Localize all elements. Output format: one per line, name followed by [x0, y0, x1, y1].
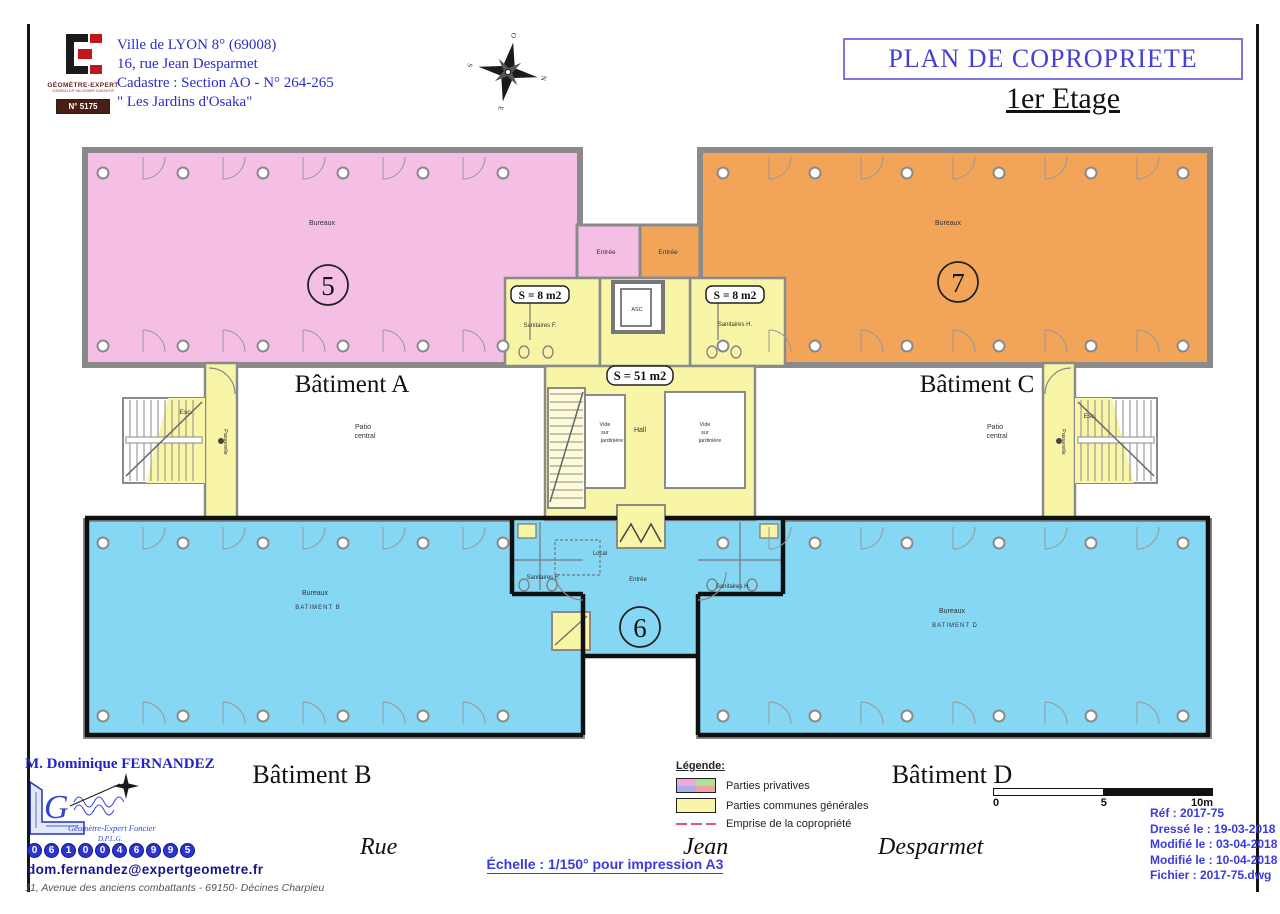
vide-right-1: Vide — [700, 422, 711, 428]
address-line-3: Cadastre : Section AO - N° 264-265 — [117, 74, 334, 93]
surveyor-logo: G Géomètre-Expert Foncier D.P.L.G. — [30, 773, 156, 843]
vide-left-3: jardinière — [600, 438, 624, 444]
street-desparmet: Desparmet — [878, 834, 983, 861]
bureaux-b-label: Bureaux — [302, 590, 329, 597]
surveyor-name: M. Dominique FERNANDEZ — [25, 756, 215, 773]
surveyor-email: dom.fernandez@expertgeometre.fr — [27, 862, 263, 877]
plan-title: PLAN DE COPROPRIETE — [888, 44, 1197, 74]
communes-swatch — [676, 798, 716, 813]
phone-number: 0 6 1 0 0 4 6 9 9 5 — [27, 843, 195, 858]
batiment-a-label: Bâtiment A — [295, 371, 410, 398]
bureaux-d-label: Bureaux — [939, 608, 966, 615]
scale-0: 0 — [993, 797, 999, 809]
patio-left-2: central — [354, 433, 375, 440]
vide-left-2: sur — [601, 430, 609, 436]
batiment-c-label: Bâtiment C — [920, 371, 1035, 398]
s8-right-label: S = 8 m2 — [714, 290, 757, 302]
sanitaires-f2-label: Sanitaires F. — [526, 575, 559, 581]
vide-right-2: sur — [701, 430, 709, 436]
entree-c-label: Entrée — [658, 249, 678, 256]
building-b-area — [85, 520, 583, 737]
logo-brand-text: GÉOMÈTRE-EXPERT — [44, 82, 122, 89]
entree-bottom-label: Entrée — [629, 577, 647, 583]
phone-digit: 9 — [146, 843, 161, 858]
sanitaires-h-label: Sanitaires H. — [718, 322, 753, 328]
project-address-block: Ville de LYON 8° (69008) 16, rue Jean De… — [117, 36, 334, 112]
surveyor-logo-line1: Géomètre-Expert Foncier — [68, 823, 156, 833]
address-line-1: Ville de LYON 8° (69008) — [117, 36, 334, 55]
phone-digit: 9 — [163, 843, 178, 858]
local-label: Local — [593, 551, 607, 557]
sanitaires-f-label: Sanitaires F. — [523, 323, 556, 329]
hall-label: Hall — [634, 427, 647, 434]
compass-rose: N E S O — [459, 26, 554, 118]
asc-label: ASC — [631, 307, 642, 313]
phone-digit: 5 — [180, 843, 195, 858]
info-ref: Réf : 2017-75 — [1150, 806, 1277, 822]
geometre-expert-logo-mark — [44, 32, 122, 76]
logo-tagline: CONSEILLER VALORISER GARANTIR — [44, 89, 122, 93]
legend-title: Légende: — [676, 760, 868, 772]
phone-digit: 4 — [112, 843, 127, 858]
compass-o: O — [509, 32, 518, 38]
sheet-frame-right — [1256, 24, 1259, 892]
vide-right-3: jardinière — [698, 438, 722, 444]
legend-communes-label: Parties communes générales — [726, 800, 868, 812]
geometre-expert-logo: GÉOMÈTRE-EXPERT CONSEILLER VALORISER GAR… — [44, 32, 122, 114]
batiment-d-sub: BATIMENT D — [932, 623, 978, 629]
bureaux-a-label: Bureaux — [309, 220, 336, 227]
compass-n: N — [539, 75, 548, 81]
legend: Légende: Parties privatives Parties comm… — [676, 760, 868, 830]
legend-row-emprise: Emprise de la copropriété — [676, 818, 868, 830]
sanitaires-h2-label: Sanitaires H. — [716, 584, 751, 590]
s51-label: S = 51 m2 — [614, 369, 667, 383]
bureaux-c-label: Bureaux — [935, 220, 962, 227]
phone-digit: 6 — [129, 843, 144, 858]
legend-row-communes: Parties communes générales — [676, 798, 868, 813]
emprise-dash-swatch — [676, 823, 716, 825]
address-line-4: " Les Jardins d'Osaka" — [117, 93, 334, 112]
patio-left-1: Patio — [355, 424, 371, 431]
info-fichier: Fichier : 2017-75.dwg — [1150, 868, 1277, 884]
legend-privatives-label: Parties privatives — [726, 780, 810, 792]
plan-title-box: PLAN DE COPROPRIETE — [843, 38, 1243, 80]
logo-number-badge: N° 5175 — [56, 99, 110, 114]
surveyor-logo-line2: D.P.L.G. — [97, 835, 123, 843]
legend-emprise-label: Emprise de la copropriété — [726, 818, 851, 830]
phone-digit: 0 — [95, 843, 110, 858]
entree-a-label: Entrée — [596, 249, 616, 256]
phone-digit: 0 — [78, 843, 93, 858]
legend-row-privatives: Parties privatives — [676, 778, 868, 793]
info-modifie-1: Modifié le : 03-04-2018 — [1150, 837, 1277, 853]
office-address: 11, Avenue des anciens combattants - 691… — [25, 882, 324, 894]
floor-subtitle: 1er Etage — [958, 82, 1168, 116]
patio-right-1: Patio — [987, 424, 1003, 431]
batiment-b-caption: Bâtiment B — [222, 760, 402, 790]
compass-s: S — [465, 63, 474, 68]
vide-left-1: Vide — [600, 422, 611, 428]
esc-left-label: Esc. — [180, 409, 193, 416]
floor-plan-drawing: Bâtiment A Bâtiment C Bureaux 5 Bureaux … — [0, 0, 1280, 914]
compass-e: E — [496, 105, 505, 111]
phone-digit: 0 — [27, 843, 42, 858]
scale-bar-graphic — [993, 788, 1213, 796]
info-dresse: Dressé le : 19-03-2018 — [1150, 822, 1277, 838]
logo-g-letter: G — [44, 789, 69, 826]
s8-left-label: S = 8 m2 — [519, 290, 562, 302]
scale-note: Échelle : 1/150° pour impression A3 — [455, 856, 755, 874]
lot-6-number: 6 — [633, 613, 647, 643]
lot-7-number: 7 — [951, 268, 965, 298]
address-line-2: 16, rue Jean Desparmet — [117, 55, 334, 74]
batiment-d-caption: Bâtiment D — [862, 760, 1042, 790]
passerelle-left-label: Passerelle — [222, 429, 228, 455]
phone-digit: 1 — [61, 843, 76, 858]
phone-digit: 6 — [44, 843, 59, 858]
scale-5: 5 — [1101, 797, 1107, 809]
drawing-info-block: Réf : 2017-75 Dressé le : 19-03-2018 Mod… — [1150, 806, 1277, 884]
lot-5-number: 5 — [321, 271, 335, 301]
esc-right-label: Esc. — [1084, 413, 1097, 420]
patio-right-2: central — [986, 433, 1007, 440]
batiment-b-sub: BATIMENT B — [295, 605, 340, 611]
passerelle-right-label: Passerelle — [1060, 429, 1066, 455]
street-rue: Rue — [360, 834, 397, 861]
info-modifie-2: Modifié le : 10-04-2018 — [1150, 853, 1277, 869]
privatives-swatch — [676, 778, 716, 793]
